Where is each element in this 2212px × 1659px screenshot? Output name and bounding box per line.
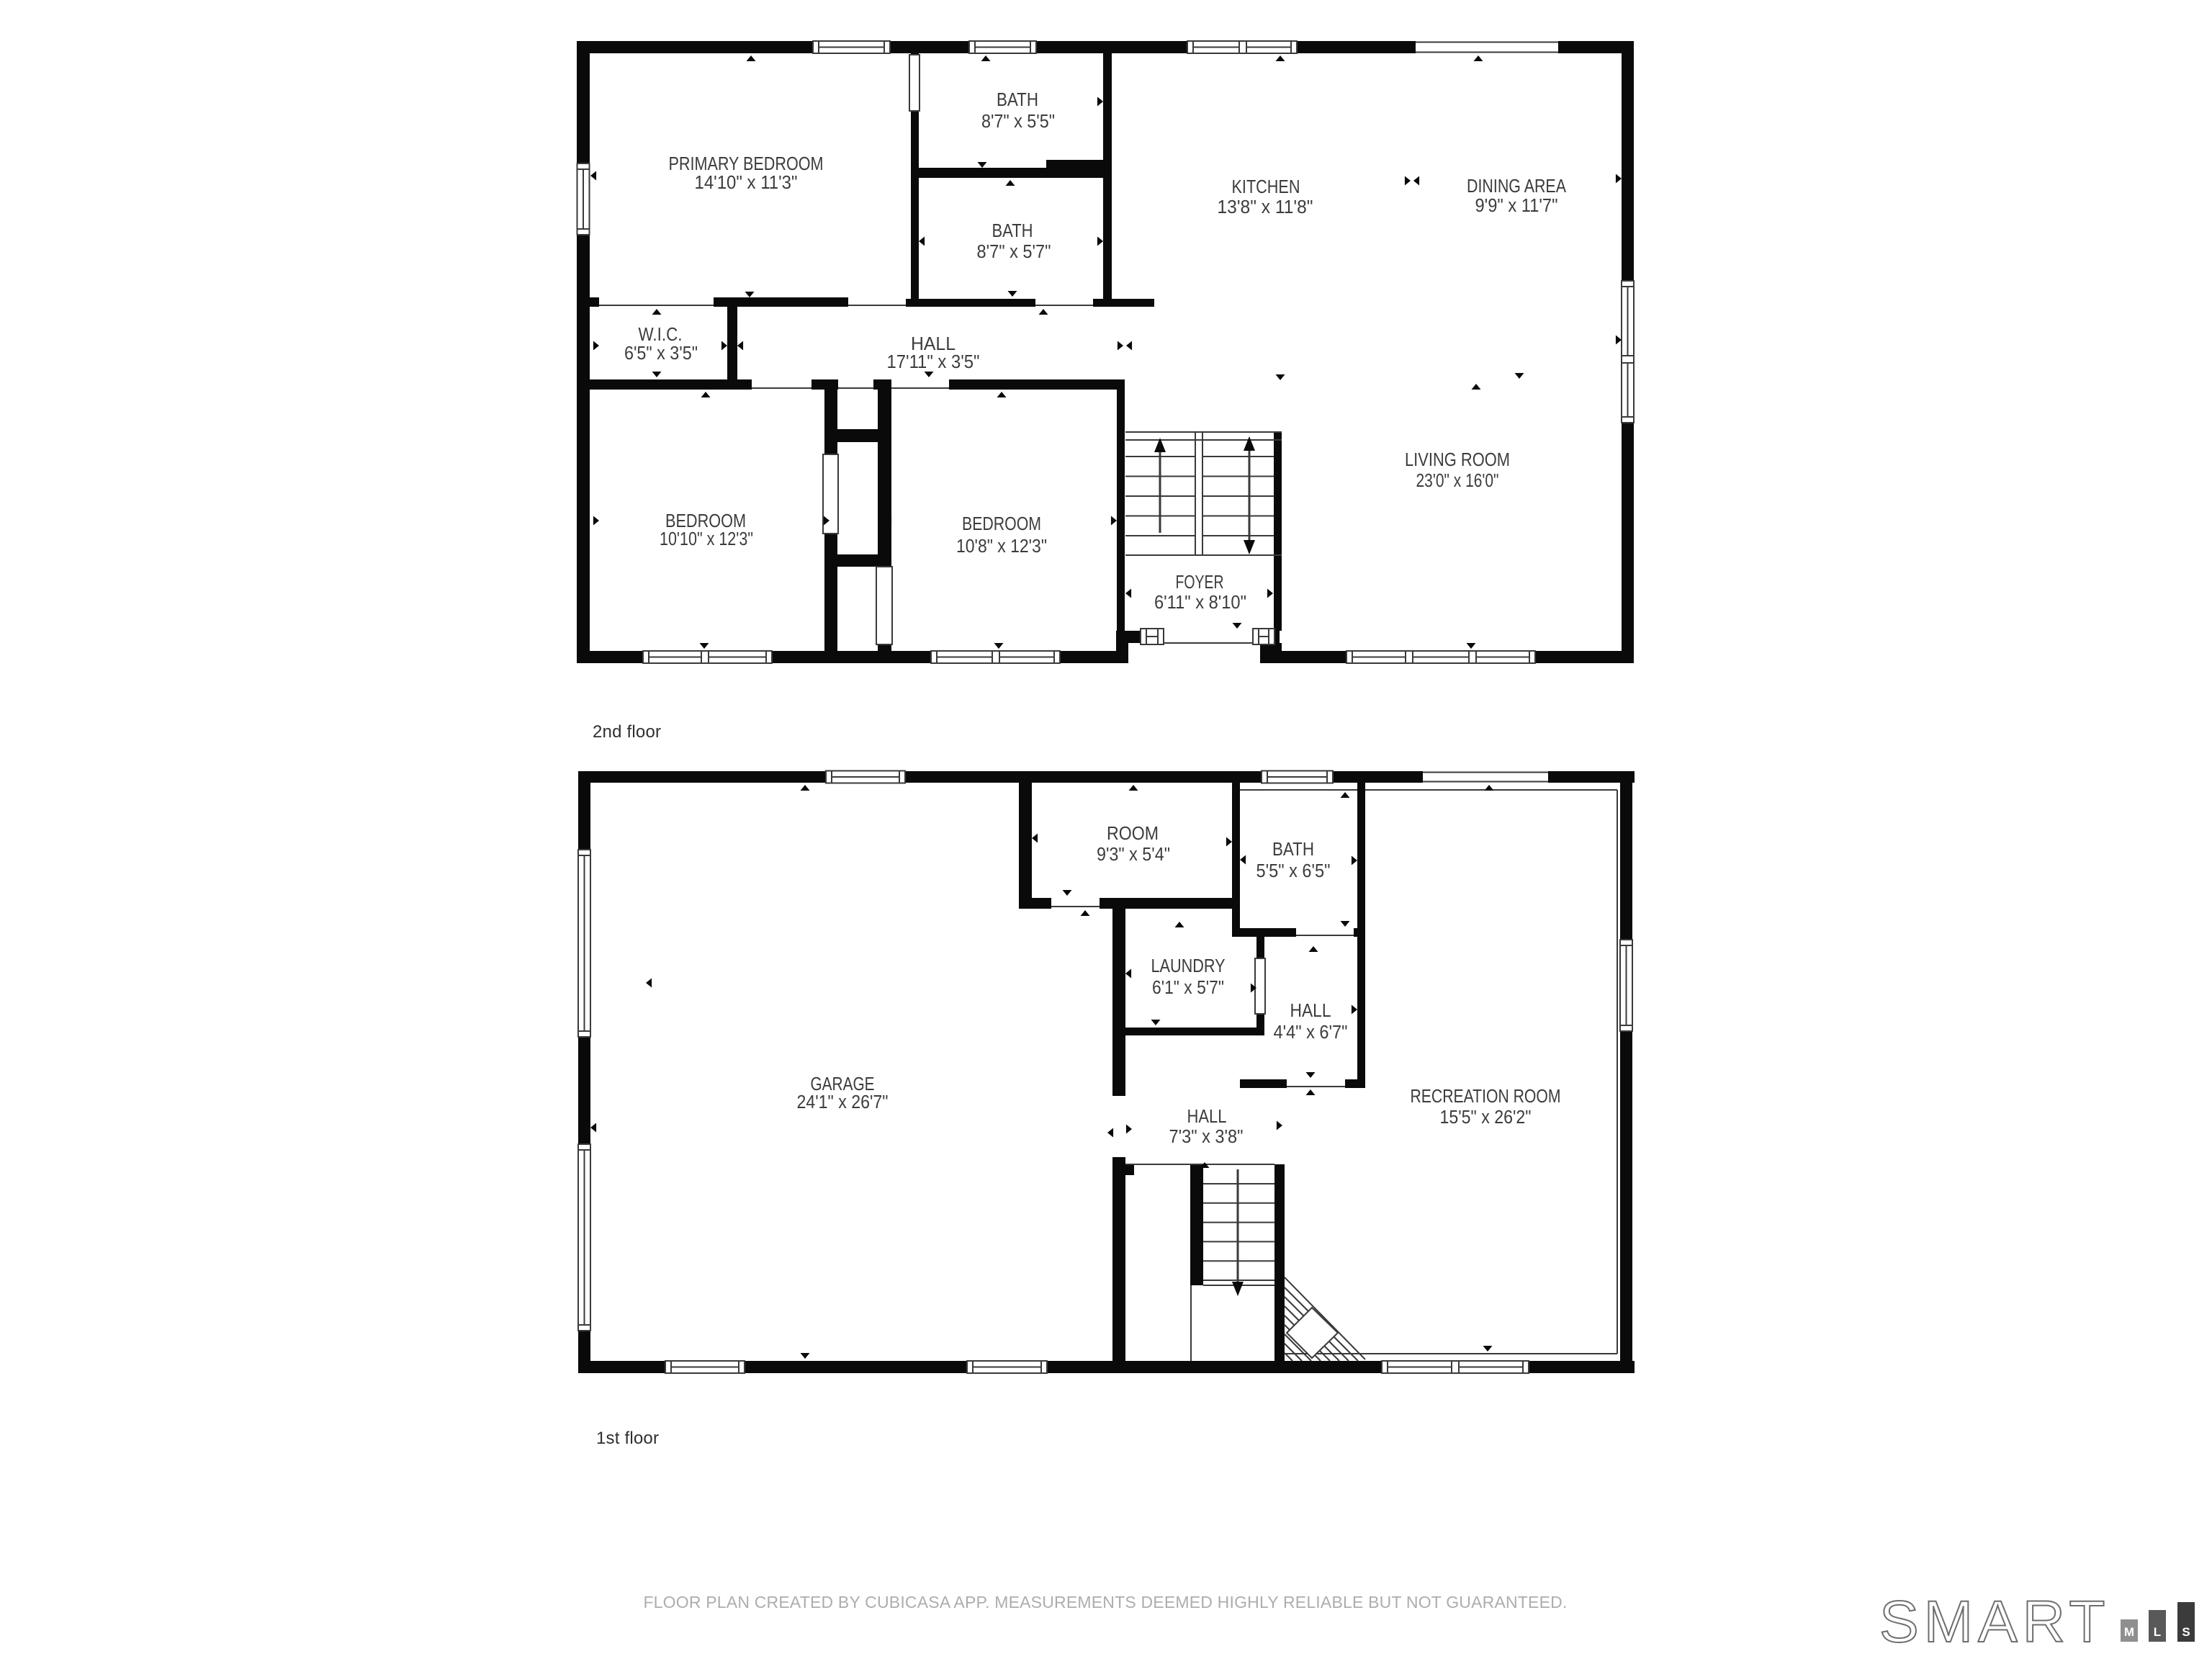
svg-text:BATH: BATH — [1272, 840, 1314, 860]
svg-text:HALL: HALL — [1187, 1107, 1227, 1127]
svg-text:KITCHEN: KITCHEN — [1232, 177, 1300, 197]
svg-text:BATH: BATH — [992, 221, 1033, 241]
svg-text:10'8" x 12'3": 10'8" x 12'3" — [956, 536, 1047, 557]
svg-text:23'0" x 16'0": 23'0" x 16'0" — [1416, 471, 1499, 491]
svg-text:4'4" x 6'7": 4'4" x 6'7" — [1274, 1022, 1348, 1043]
svg-text:BEDROOM: BEDROOM — [665, 511, 746, 531]
svg-text:HALL: HALL — [911, 334, 956, 354]
svg-text:7'3" x 3'8": 7'3" x 3'8" — [1169, 1127, 1244, 1147]
svg-text:BEDROOM: BEDROOM — [962, 514, 1041, 534]
svg-text:LIVING ROOM: LIVING ROOM — [1405, 450, 1510, 470]
svg-text:10'10" x 12'3": 10'10" x 12'3" — [660, 529, 753, 549]
svg-text:S: S — [2182, 1625, 2190, 1639]
svg-text:FLOOR PLAN CREATED BY CUBICASA: FLOOR PLAN CREATED BY CUBICASA APP. MEAS… — [643, 1593, 1567, 1611]
svg-text:9'9" x 11'7": 9'9" x 11'7" — [1475, 196, 1558, 216]
svg-text:BATH: BATH — [997, 90, 1038, 110]
svg-text:6'1" x 5'7": 6'1" x 5'7" — [1152, 978, 1224, 998]
svg-text:8'7" x 5'5": 8'7" x 5'5" — [981, 112, 1055, 132]
svg-text:6'5" x 3'5": 6'5" x 3'5" — [624, 343, 698, 364]
svg-text:GARAGE: GARAGE — [811, 1074, 875, 1094]
svg-text:M: M — [2124, 1625, 2134, 1639]
svg-text:1st floor: 1st floor — [596, 1429, 659, 1448]
svg-text:5'5" x 6'5": 5'5" x 6'5" — [1256, 861, 1331, 881]
svg-text:15'5" x 26'2": 15'5" x 26'2" — [1440, 1107, 1532, 1128]
svg-text:L: L — [2154, 1625, 2161, 1639]
svg-text:DINING AREA: DINING AREA — [1467, 176, 1566, 197]
svg-text:24'1" x 26'7": 24'1" x 26'7" — [797, 1092, 889, 1112]
svg-text:9'3" x 5'4": 9'3" x 5'4" — [1097, 845, 1170, 865]
svg-text:SMART: SMART — [1879, 1589, 2110, 1655]
svg-text:17'11" x 3'5": 17'11" x 3'5" — [887, 352, 980, 372]
svg-text:2nd floor: 2nd floor — [593, 722, 661, 742]
svg-text:FOYER: FOYER — [1176, 572, 1224, 593]
svg-text:13'8" x 11'8": 13'8" x 11'8" — [1218, 197, 1313, 217]
svg-text:HALL: HALL — [1290, 1001, 1331, 1021]
svg-text:LAUNDRY: LAUNDRY — [1151, 956, 1226, 976]
svg-text:6'11" x 8'10": 6'11" x 8'10" — [1154, 593, 1246, 613]
svg-text:ROOM: ROOM — [1107, 824, 1159, 844]
svg-text:8'7" x 5'7": 8'7" x 5'7" — [977, 242, 1051, 262]
svg-text:PRIMARY BEDROOM: PRIMARY BEDROOM — [669, 154, 824, 174]
svg-text:14'10" x 11'3": 14'10" x 11'3" — [695, 173, 798, 193]
svg-text:W.I.C.: W.I.C. — [639, 325, 683, 345]
svg-text:RECREATION ROOM: RECREATION ROOM — [1411, 1087, 1561, 1107]
